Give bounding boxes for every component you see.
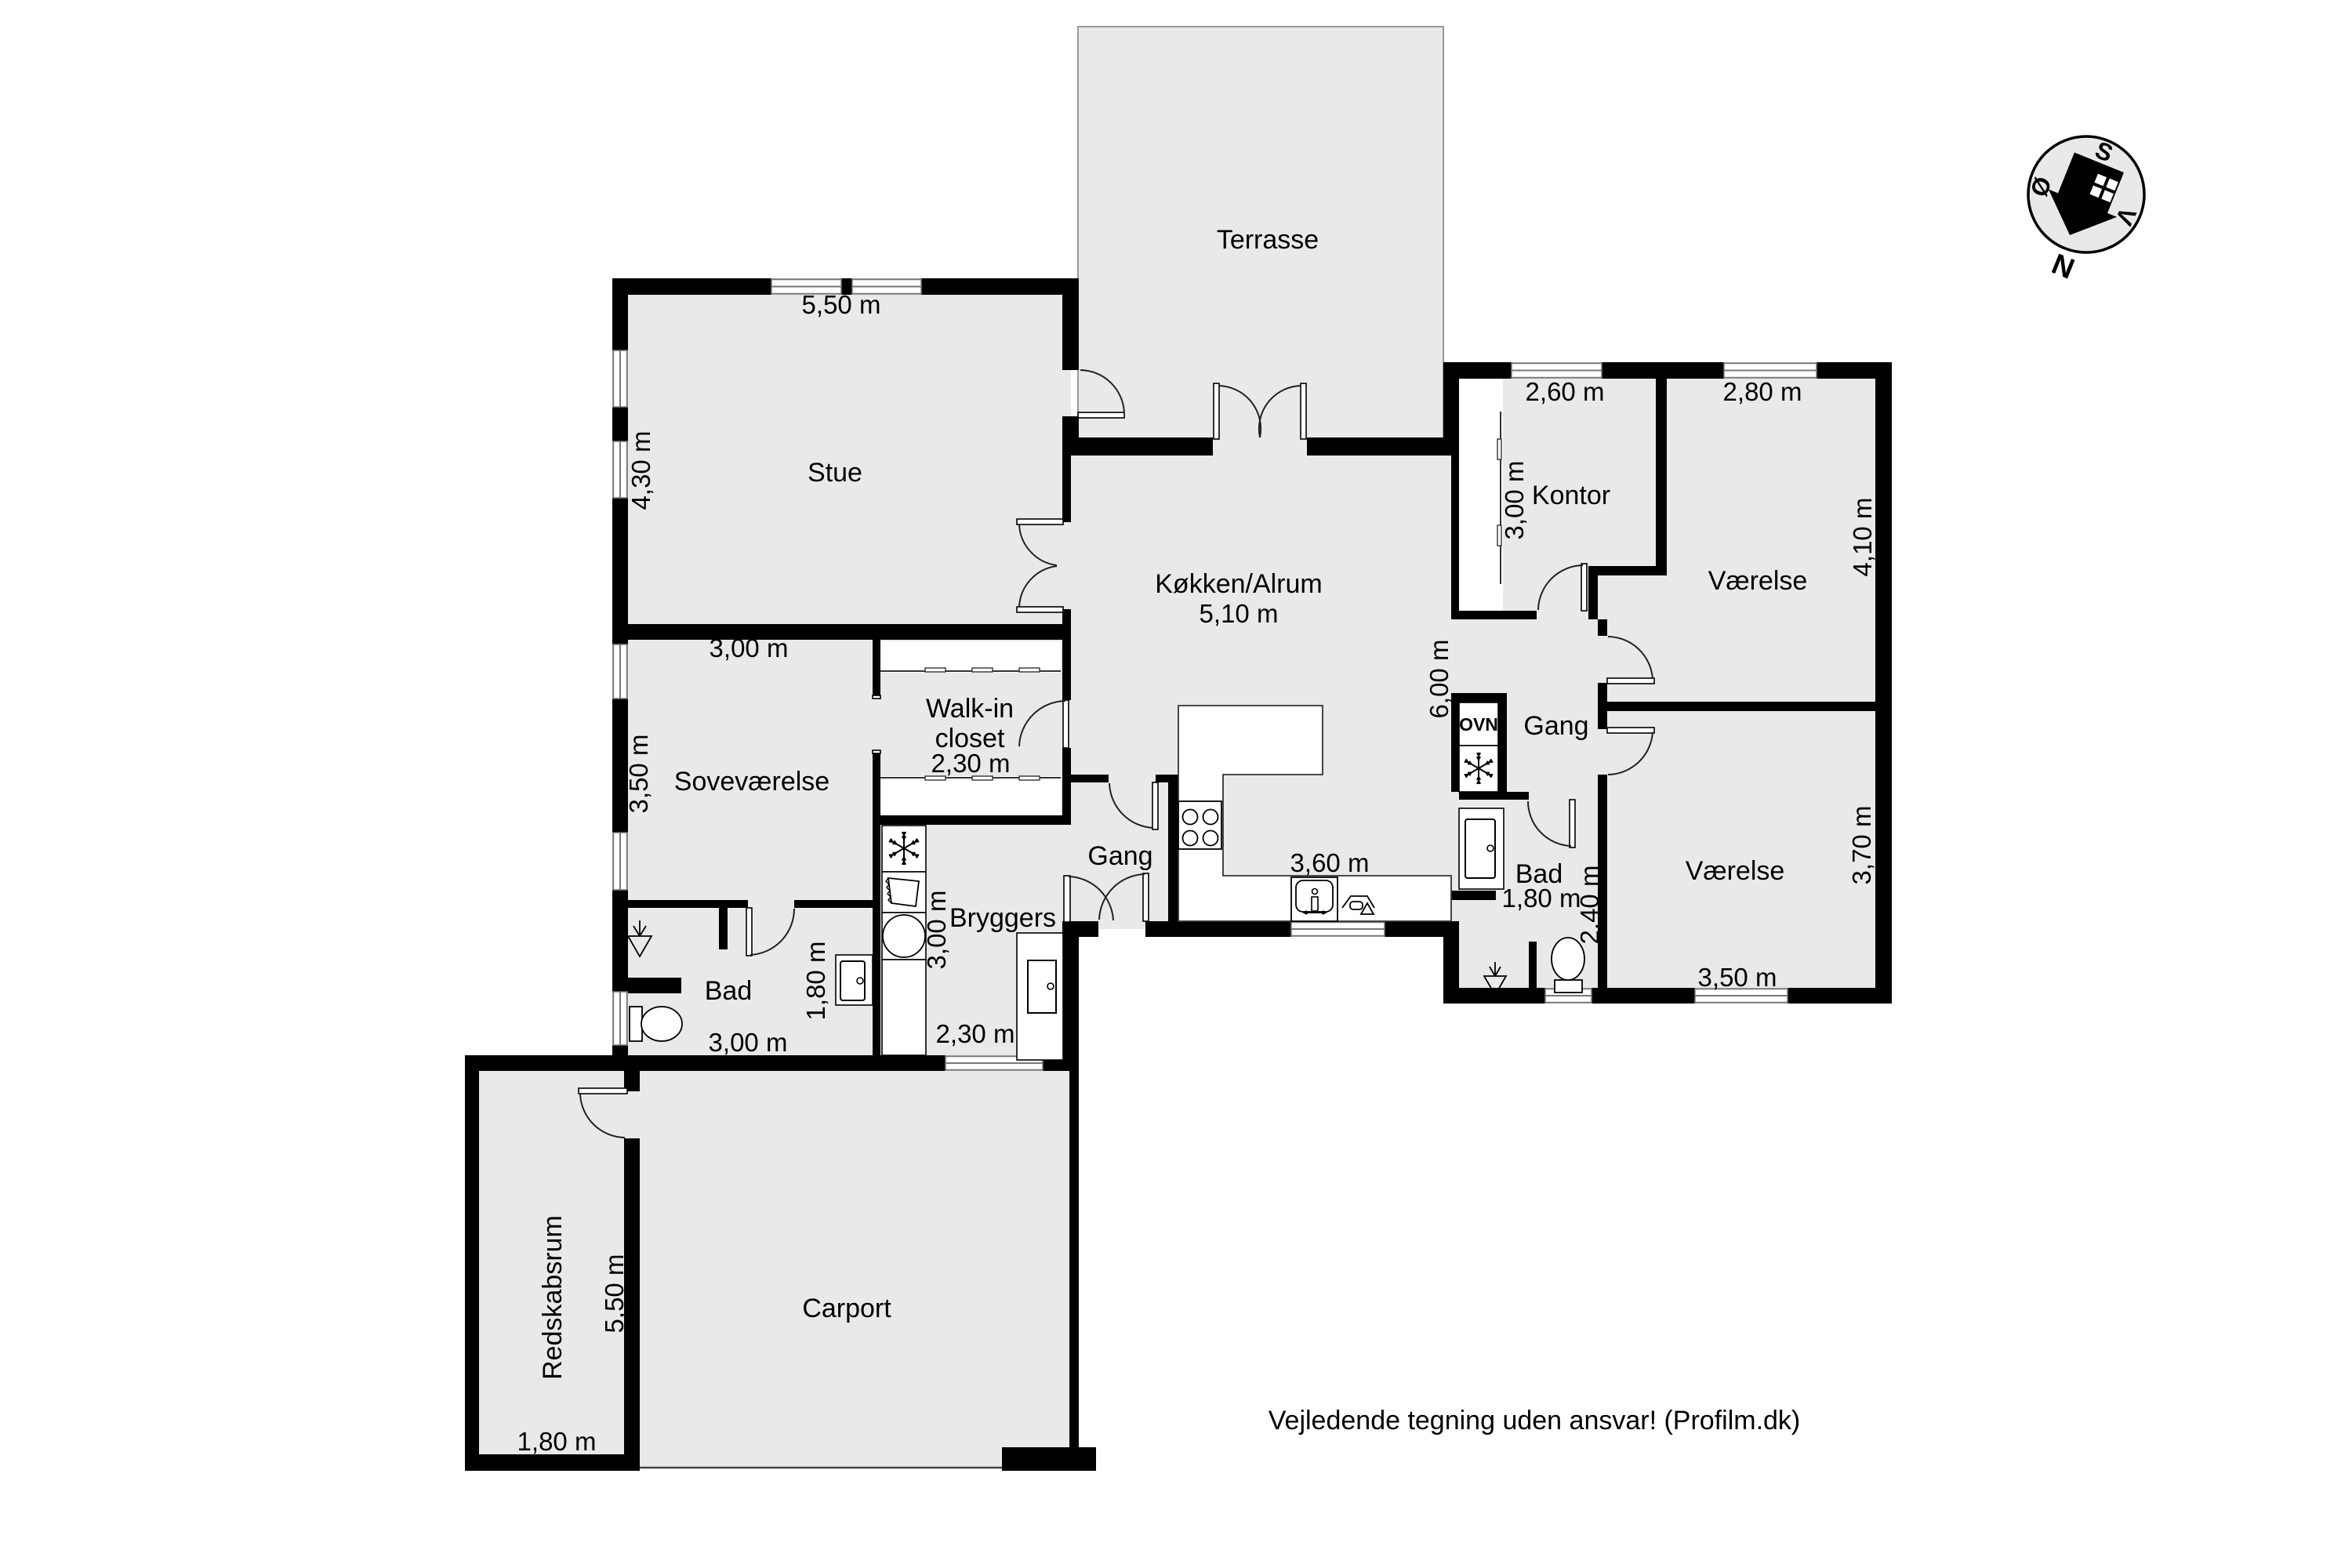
svg-text:3,70 m: 3,70 m <box>1847 806 1876 885</box>
svg-text:4,30 m: 4,30 m <box>626 431 655 510</box>
svg-text:3,00 m: 3,00 m <box>710 633 789 662</box>
svg-text:3,00 m: 3,00 m <box>1500 461 1529 540</box>
svg-text:3,50 m: 3,50 m <box>624 735 653 814</box>
svg-text:1,80 m: 1,80 m <box>517 1427 597 1456</box>
svg-text:3,60 m: 3,60 m <box>1290 848 1370 877</box>
svg-text:2,30 m: 2,30 m <box>931 749 1011 778</box>
svg-text:2,30 m: 2,30 m <box>936 1019 1015 1048</box>
svg-text:Vejledende tegning uden ansvar: Vejledende tegning uden ansvar! (Profilm… <box>1269 1406 1801 1436</box>
svg-text:Soveværelse: Soveværelse <box>674 767 829 797</box>
svg-text:Gang: Gang <box>1523 711 1588 741</box>
svg-text:Redskabsrum: Redskabsrum <box>538 1215 568 1380</box>
svg-text:Bad: Bad <box>705 976 753 1006</box>
svg-text:2,40 m: 2,40 m <box>1575 866 1604 945</box>
svg-text:5,50 m: 5,50 m <box>802 290 881 319</box>
svg-text:OVN: OVN <box>1459 714 1498 735</box>
svg-text:Carport: Carport <box>802 1294 891 1323</box>
svg-text:Gang: Gang <box>1087 841 1152 871</box>
svg-text:6,00 m: 6,00 m <box>1425 640 1454 719</box>
svg-text:2,80 m: 2,80 m <box>1723 377 1802 406</box>
svg-text:Kontor: Kontor <box>1532 481 1610 510</box>
svg-text:Stue: Stue <box>808 458 862 488</box>
svg-text:Walk-in: Walk-in <box>926 694 1014 724</box>
svg-text:Terrasse: Terrasse <box>1217 225 1319 255</box>
svg-text:Værelse: Værelse <box>1708 566 1808 596</box>
svg-text:Værelse: Værelse <box>1686 856 1785 886</box>
svg-text:Bryggers: Bryggers <box>949 903 1056 933</box>
svg-text:3,50 m: 3,50 m <box>1698 963 1777 992</box>
svg-text:3,00 m: 3,00 m <box>922 891 951 970</box>
svg-text:5,10 m: 5,10 m <box>1200 599 1279 628</box>
svg-text:2,60 m: 2,60 m <box>1526 377 1605 406</box>
svg-text:1,80 m: 1,80 m <box>801 942 830 1021</box>
svg-text:Køkken/Alrum: Køkken/Alrum <box>1155 569 1323 599</box>
svg-text:3,00 m: 3,00 m <box>709 1028 788 1057</box>
svg-text:1,80 m: 1,80 m <box>1502 884 1581 913</box>
svg-text:4,10 m: 4,10 m <box>1848 498 1877 577</box>
svg-text:5,50 m: 5,50 m <box>600 1254 629 1334</box>
